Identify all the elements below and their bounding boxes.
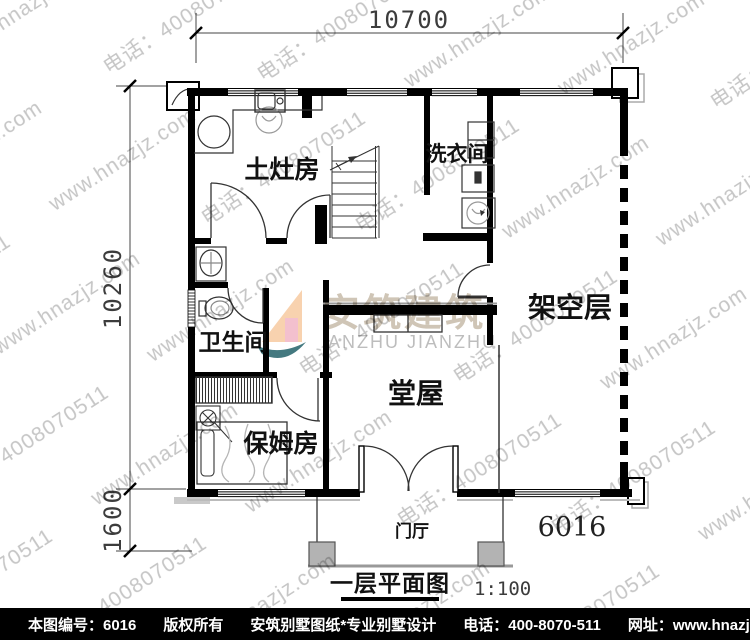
window-laundry <box>432 89 477 96</box>
room-label-porch: 门厅 <box>395 521 429 541</box>
room-label-stilt: 架空层 <box>528 291 612 323</box>
footer-phone: 电话：400-8070-511 <box>463 614 601 635</box>
wash-basin-icon <box>196 247 226 281</box>
window-stair <box>347 89 407 96</box>
room-label-stove: 土灶房 <box>244 155 319 184</box>
porch-column <box>478 542 504 566</box>
entrance-double-door <box>359 446 458 492</box>
room-labels: 土灶房 洗衣间 架空层 卫生间 堂屋 保姆房 门厅 <box>199 142 613 541</box>
door-stilt-floor <box>458 265 490 297</box>
room-label-bathroom: 卫生间 <box>199 329 268 355</box>
nightstand-icon <box>196 406 220 430</box>
dim-value-top: 10700 <box>368 6 450 34</box>
plan-scale: 1:100 <box>474 578 531 600</box>
sideboard-icon <box>374 315 442 332</box>
footer-drawing-number: 本图编号：6016 <box>28 614 136 635</box>
floor-plan-canvas: 10700 10260 1600 <box>0 0 750 608</box>
floor-plan-svg: 10700 10260 1600 <box>0 0 750 608</box>
dim-value-left: 10260 <box>99 247 127 329</box>
wok-stove-icon <box>198 116 230 148</box>
footer-info-bar: 本图编号：6016 版权所有 安筑别墅图纸*专业别墅设计 电话：400-8070… <box>0 608 750 640</box>
footer-website: 网址：www.hnazjz.com <box>628 614 750 635</box>
plan-title-underline <box>341 597 439 601</box>
door-stove-left <box>211 183 266 238</box>
staircase <box>330 146 379 238</box>
door-nanny-room <box>277 378 320 421</box>
window-stilt-bottom <box>515 490 600 497</box>
window-stilt-top <box>520 89 593 96</box>
window-bathroom <box>188 290 195 327</box>
dim-value-porch: 1600 <box>99 487 127 553</box>
window-nanny-room <box>218 490 305 497</box>
pot-icon <box>256 107 282 133</box>
porch-column <box>309 542 335 566</box>
room-label-laundry: 洗衣间 <box>426 142 489 166</box>
wardrobe-icon <box>196 377 272 403</box>
room-label-hall: 堂屋 <box>388 378 444 409</box>
footer-copyright: 版权所有 <box>163 614 223 635</box>
plan-number: 6016 <box>538 512 607 543</box>
plan-title: 一层平面图 <box>330 570 450 596</box>
room-label-nanny: 保姆房 <box>242 429 318 458</box>
footer-company: 安筑别墅图纸*专业别墅设计 <box>250 614 436 635</box>
toilet-icon <box>199 297 233 319</box>
stair-direction-arrow <box>336 156 357 170</box>
title-block: 6016 一层平面图 1:100 <box>330 512 606 601</box>
